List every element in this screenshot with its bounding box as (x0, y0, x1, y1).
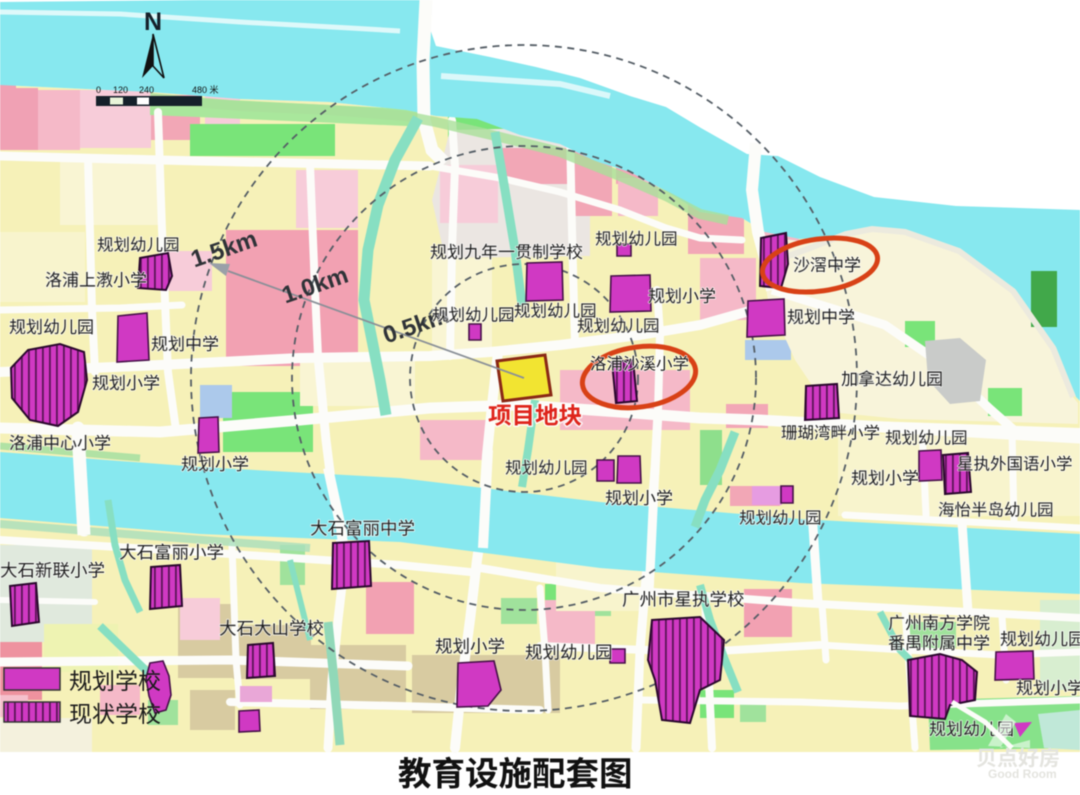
svg-text:Good Room: Good Room (988, 767, 1057, 781)
svg-text:0: 0 (96, 85, 101, 95)
svg-text:120: 120 (113, 85, 128, 95)
svg-text:240: 240 (139, 85, 154, 95)
svg-text:480 米: 480 米 (192, 84, 219, 95)
svg-text:N: N (144, 8, 162, 36)
